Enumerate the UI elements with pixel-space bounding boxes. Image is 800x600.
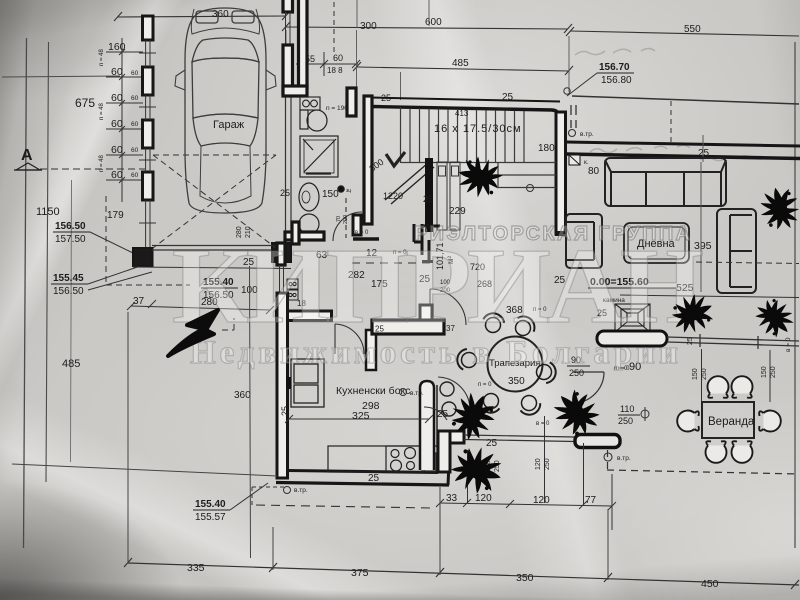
svg-text:25: 25 xyxy=(423,194,433,204)
svg-text:60: 60 xyxy=(131,121,139,128)
svg-text:250: 250 xyxy=(544,458,551,470)
svg-text:155.40: 155.40 xyxy=(195,499,226,510)
svg-text:1220: 1220 xyxy=(383,191,403,201)
svg-text:350: 350 xyxy=(508,376,525,387)
svg-text:A: A xyxy=(21,147,33,164)
svg-text:250: 250 xyxy=(701,368,708,380)
svg-text:п = 0: п = 0 xyxy=(478,382,492,388)
svg-text:485: 485 xyxy=(452,58,469,69)
svg-text:n = 190: n = 190 xyxy=(326,105,348,112)
svg-text:33: 33 xyxy=(446,493,458,504)
svg-text:25: 25 xyxy=(280,188,290,198)
svg-text:157.50: 157.50 xyxy=(55,234,86,245)
svg-text:120: 120 xyxy=(475,493,492,504)
svg-text:156.50: 156.50 xyxy=(55,221,86,232)
svg-text:110: 110 xyxy=(620,404,634,414)
svg-text:160: 160 xyxy=(108,41,126,53)
svg-text:60: 60 xyxy=(111,144,123,156)
svg-text:229: 229 xyxy=(449,206,466,217)
svg-text:250: 250 xyxy=(618,416,633,426)
svg-text:200: 200 xyxy=(343,215,349,224)
svg-text:179: 179 xyxy=(107,210,124,221)
svg-text:60: 60 xyxy=(131,147,139,154)
svg-text:25: 25 xyxy=(280,406,290,416)
svg-text:60: 60 xyxy=(131,70,139,77)
svg-text:60: 60 xyxy=(111,66,123,78)
svg-text:n = 48: n = 48 xyxy=(99,102,105,120)
svg-text:18 8: 18 8 xyxy=(327,66,343,75)
svg-text:675: 675 xyxy=(75,96,95,110)
svg-text:25: 25 xyxy=(368,473,380,484)
svg-text:450: 450 xyxy=(701,578,719,590)
svg-text:375: 375 xyxy=(351,567,369,579)
svg-text:60: 60 xyxy=(333,53,343,63)
svg-text:120: 120 xyxy=(533,495,550,506)
svg-text:60: 60 xyxy=(111,118,123,130)
svg-text:Веранда: Веранда xyxy=(708,416,755,428)
svg-text:70: 70 xyxy=(336,216,342,222)
svg-text:25: 25 xyxy=(502,92,514,103)
svg-text:в.тр.: в.тр. xyxy=(617,455,631,462)
svg-text:25: 25 xyxy=(437,409,449,420)
svg-text:155.45: 155.45 xyxy=(53,273,84,284)
svg-text:в = 0: в = 0 xyxy=(536,421,550,427)
svg-text:150: 150 xyxy=(692,368,699,380)
svg-text:413: 413 xyxy=(455,109,469,118)
svg-text:180: 180 xyxy=(538,143,555,154)
svg-text:к.: к. xyxy=(584,159,589,166)
svg-text:156.50: 156.50 xyxy=(53,286,84,297)
svg-text:60: 60 xyxy=(111,169,123,181)
svg-text:120: 120 xyxy=(535,458,542,470)
svg-text:Гараж: Гараж xyxy=(213,119,245,131)
svg-text:77: 77 xyxy=(585,495,597,506)
svg-text:зц: зц xyxy=(346,188,351,194)
svg-text:80: 80 xyxy=(588,166,600,177)
svg-text:60: 60 xyxy=(131,172,139,179)
svg-text:300: 300 xyxy=(360,21,377,32)
svg-text:в.тр.: в.тр. xyxy=(294,487,308,494)
svg-text:550: 550 xyxy=(684,24,701,35)
svg-text:Недвижимость в Болгарии: Недвижимость в Болгарии xyxy=(190,335,678,371)
svg-text:n = 48: n = 48 xyxy=(99,48,105,66)
svg-text:600: 600 xyxy=(425,17,442,28)
svg-text:16 х 17.5/30см: 16 х 17.5/30см xyxy=(434,123,522,135)
svg-text:156.70: 156.70 xyxy=(599,62,630,73)
svg-text:335: 335 xyxy=(187,562,205,574)
svg-text:156.80: 156.80 xyxy=(601,75,632,86)
svg-text:150: 150 xyxy=(761,366,768,378)
svg-text:350: 350 xyxy=(516,572,534,584)
svg-text:60: 60 xyxy=(131,95,139,102)
svg-text:250: 250 xyxy=(770,366,777,378)
svg-text:60: 60 xyxy=(111,92,123,104)
svg-text:360: 360 xyxy=(234,390,251,401)
svg-text:в.тр.: в.тр. xyxy=(410,390,424,397)
svg-text:485: 485 xyxy=(62,358,80,370)
svg-text:в = 0: в = 0 xyxy=(785,337,792,352)
svg-text:1150: 1150 xyxy=(36,206,60,218)
svg-text:в.тр.: в.тр. xyxy=(580,131,594,138)
svg-text:155.57: 155.57 xyxy=(195,512,226,523)
svg-text:КИПРИАН: КИПРИАН xyxy=(172,227,704,346)
svg-text:150: 150 xyxy=(322,189,339,200)
svg-text:37: 37 xyxy=(133,296,145,307)
svg-text:325: 325 xyxy=(352,410,370,422)
